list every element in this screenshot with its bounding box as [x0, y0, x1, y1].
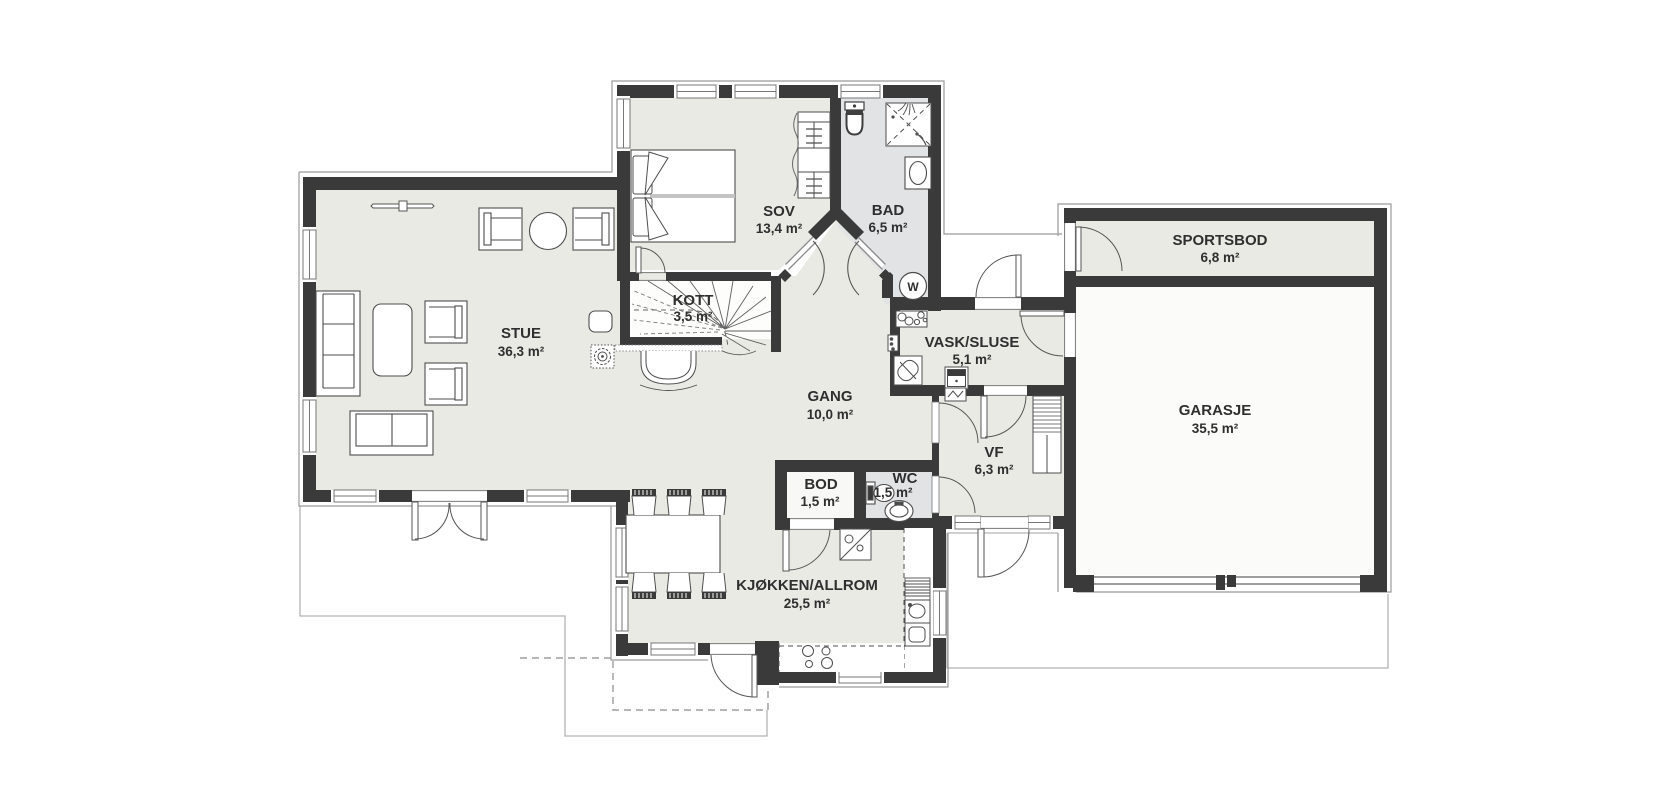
svg-text:35,5 m²: 35,5 m² [1192, 421, 1239, 436]
svg-text:BAD: BAD [872, 202, 905, 219]
svg-text:SPORTSBOD: SPORTSBOD [1172, 232, 1267, 249]
svg-text:3,5 m²: 3,5 m² [673, 309, 713, 324]
svg-text:KJØKKEN/ALLROM: KJØKKEN/ALLROM [736, 577, 878, 594]
svg-text:6,3 m²: 6,3 m² [974, 462, 1014, 477]
svg-text:5,1 m²: 5,1 m² [952, 352, 992, 367]
svg-text:36,3 m²: 36,3 m² [498, 344, 545, 359]
svg-text:10,0 m²: 10,0 m² [807, 407, 854, 422]
svg-text:1,5 m²: 1,5 m² [800, 494, 840, 509]
svg-text:BOD: BOD [804, 476, 838, 493]
svg-text:GANG: GANG [808, 388, 853, 405]
svg-text:6,5 m²: 6,5 m² [868, 220, 908, 235]
svg-text:13,4 m²: 13,4 m² [756, 221, 803, 236]
svg-text:VASK/SLUSE: VASK/SLUSE [925, 334, 1020, 351]
svg-text:6,8 m²: 6,8 m² [1200, 250, 1240, 265]
svg-text:1,5 m²: 1,5 m² [873, 485, 913, 500]
svg-text:25,5 m²: 25,5 m² [784, 596, 831, 611]
svg-text:W: W [907, 280, 919, 294]
svg-text:STUE: STUE [501, 325, 541, 342]
svg-text:SOV: SOV [763, 203, 795, 220]
svg-text:GARASJE: GARASJE [1179, 402, 1252, 419]
svg-text:VF: VF [984, 444, 1003, 461]
svg-text:KOTT: KOTT [673, 292, 714, 309]
